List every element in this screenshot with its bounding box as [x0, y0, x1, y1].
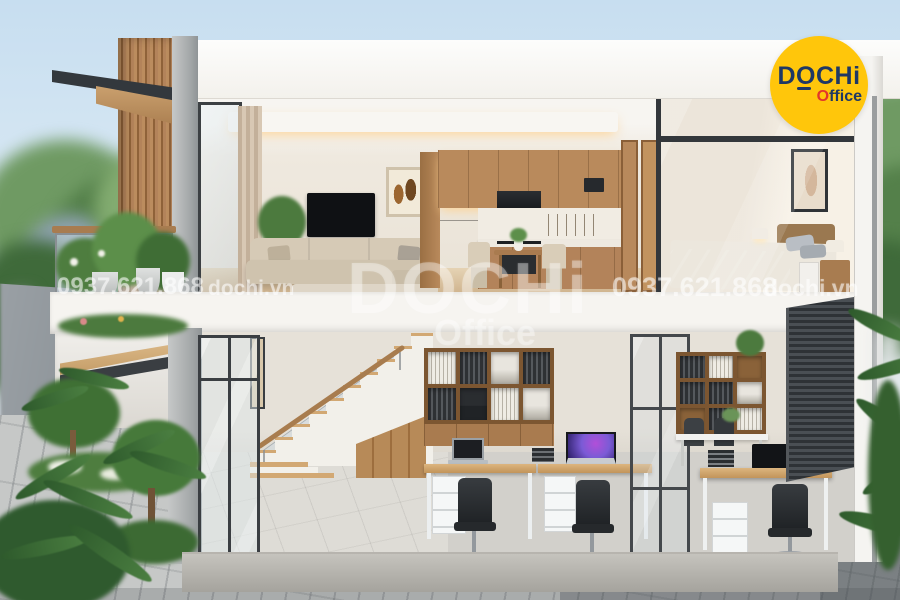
shelf-binders-black-2 — [523, 352, 551, 384]
kitchen-microwave — [584, 178, 604, 192]
meeting-table-flowers — [722, 408, 740, 422]
right-shelf-binders-6 — [737, 408, 762, 430]
meeting-table-top — [676, 434, 768, 440]
desk-1-leg-right — [528, 473, 532, 539]
paper-tray-stack — [532, 448, 554, 462]
dining-vase-plant — [510, 228, 527, 242]
planter-top-flower-1 — [80, 318, 87, 325]
right-shelf-binders-3 — [680, 382, 705, 404]
meeting-table-leg-1 — [681, 440, 684, 466]
shelf-binders-black-1 — [460, 352, 488, 384]
laptop-screen — [452, 438, 484, 460]
upper-ceiling-cove — [228, 112, 618, 132]
imac-screen — [566, 432, 616, 464]
right-shelf-binders-1 — [680, 356, 705, 378]
right-shelf-empty — [737, 356, 762, 378]
office-chair-1-back — [458, 478, 492, 524]
bookshelf-base-cabinet — [424, 424, 554, 446]
logo-office-o: O — [817, 88, 829, 105]
entrance-glass-doors — [198, 335, 260, 559]
watermark-phone-left: 0937.621.868 — [57, 273, 204, 301]
logo-office-rest: ffice — [829, 88, 862, 105]
office-chair-2-back — [576, 480, 610, 526]
bedroom-window-transom — [656, 136, 860, 142]
office-chair-3-back — [772, 484, 808, 530]
stair-landing-riser-1 — [250, 467, 318, 473]
living-balcony-door — [198, 102, 242, 296]
right-palm-mass — [868, 380, 900, 570]
office-chair-2-seat — [572, 524, 614, 533]
shelf-top-plant — [736, 330, 764, 356]
living-artwork — [386, 167, 424, 217]
l-desk-leg-right — [824, 478, 828, 550]
hall-door-1 — [621, 140, 638, 292]
architectural-render: 0937.621.868 dochi.vn DOCHi Office 0937.… — [0, 0, 900, 600]
planter-top-flower-2 — [118, 316, 124, 322]
watermark-site-right: dochi.vn — [764, 275, 859, 302]
balcony-flower-2 — [98, 250, 105, 257]
office-bookshelf — [424, 348, 554, 424]
window-blinds-right — [786, 296, 860, 482]
balcony-flower-1 — [70, 258, 78, 266]
shelf-binders-white-1 — [428, 352, 456, 384]
right-shelf-binders-2 — [709, 356, 734, 378]
living-room-tv — [307, 193, 375, 237]
desk-1-leg-left — [427, 473, 431, 539]
kitchen-range-hood — [497, 191, 541, 208]
l-desk-leg-left — [703, 478, 707, 550]
stair-landing-tread-2 — [250, 473, 334, 478]
shelf-printer — [460, 388, 488, 420]
watermark-phone-right: 0937.621.868 — [612, 272, 777, 303]
shelf-paper-stack-2 — [523, 388, 551, 420]
shelf-paper-stack-1 — [491, 352, 519, 384]
watermark-site-left: dochi.vn — [208, 277, 294, 301]
file-cabinet-2 — [544, 476, 576, 532]
desk-1-top — [424, 464, 536, 473]
tray-stack-right — [708, 450, 734, 467]
kitchen-utensil-rail — [548, 214, 600, 236]
meeting-chair-2 — [714, 418, 734, 446]
logo-brand-text: DOCHi — [770, 62, 868, 91]
bottom-floor-slab — [182, 552, 838, 592]
office-chair-1-seat — [454, 522, 496, 531]
office-chair-3-seat — [768, 528, 812, 537]
watermark-center-sub: Office — [434, 312, 536, 354]
right-shelf-papers — [737, 382, 762, 404]
right-shelf-binders-4 — [709, 382, 734, 404]
logo-office-text: Office — [770, 88, 862, 106]
office-chair-3-stem — [788, 537, 792, 552]
logo-badge: DOCHi Office — [770, 36, 868, 134]
shelf-binders-black-3 — [428, 388, 456, 420]
shelf-binders-white-2 — [491, 388, 519, 420]
meeting-chair-1 — [684, 418, 704, 446]
